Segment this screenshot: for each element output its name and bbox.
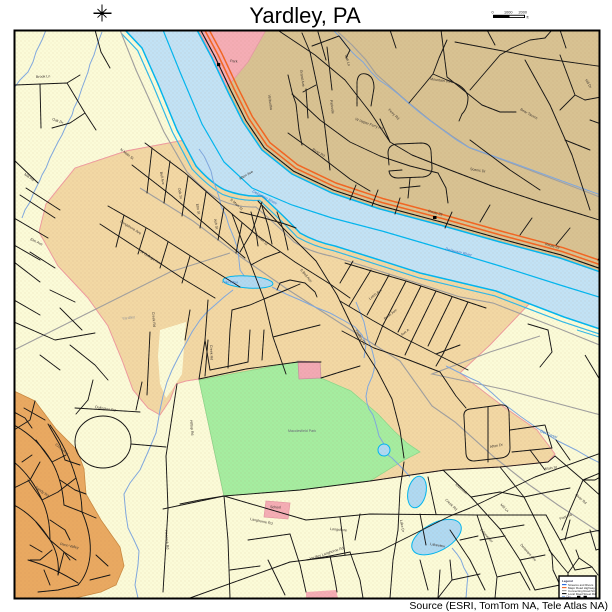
svg-text:1000: 1000 <box>504 11 512 15</box>
svg-text:2000: 2000 <box>519 11 527 15</box>
svg-text:City: City <box>566 594 571 598</box>
svg-text:0: 0 <box>492 11 494 15</box>
svg-text:Local Road Street Rd: Local Road Street Rd <box>568 592 596 596</box>
svg-text:Source (ESRI, TomTom NA, Tele: Source (ESRI, TomTom NA, Tele Atlas NA) <box>409 600 608 612</box>
svg-text:Yardley, PA: Yardley, PA <box>249 3 361 28</box>
